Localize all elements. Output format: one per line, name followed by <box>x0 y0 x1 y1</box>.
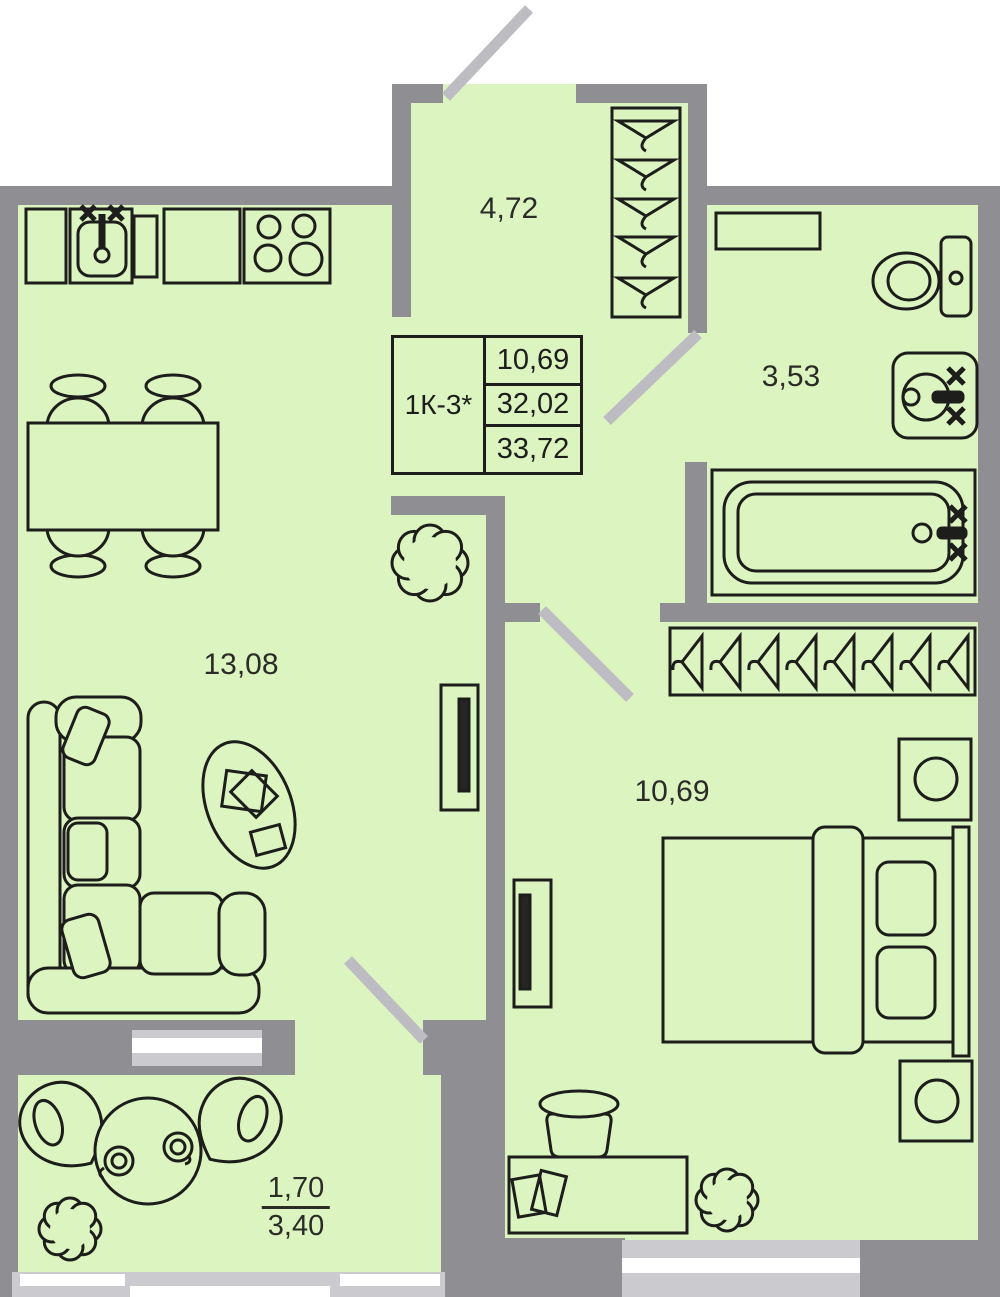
plant-bedroom <box>696 1169 758 1231</box>
toilet-icon <box>873 237 971 316</box>
balcony-coefficient-area: 1,70 <box>262 1172 330 1209</box>
desk-chair <box>540 1091 618 1157</box>
bathroom-door-leaf <box>607 334 698 421</box>
title-block: 1К-3* 10,69 32,02 33,72 <box>391 335 583 475</box>
area-living: 10,69 <box>486 338 580 383</box>
area-total: 32,02 <box>486 383 580 428</box>
area-full: 33,72 <box>486 427 580 472</box>
cabinet-panel-living <box>441 685 478 810</box>
cabinet-panel-bedroom <box>514 880 551 1007</box>
desk <box>509 1157 687 1233</box>
double-bed <box>663 827 969 1056</box>
room-label-balcony: 1,70 3,40 <box>262 1172 330 1243</box>
nightstand-bottom <box>900 1061 972 1141</box>
kitchen-counter <box>26 206 240 283</box>
washbasin-icon <box>893 353 977 438</box>
hall-wardrobe <box>612 108 680 317</box>
floor-plan: 1К-3* 10,69 32,02 33,72 4,72 3,53 13,08 … <box>0 0 1000 1297</box>
bathroom-shelf <box>716 213 820 249</box>
bedroom-door-leaf <box>542 610 630 698</box>
bathtub-icon <box>712 470 975 595</box>
dining-set <box>28 375 218 577</box>
balcony-table <box>95 1098 201 1204</box>
stove-icon <box>244 209 330 283</box>
room-label-hallway: 4,72 <box>480 192 538 226</box>
room-label-bathroom: 3,53 <box>762 360 820 394</box>
plant-balcony <box>39 1198 101 1260</box>
balcony-door-leaf <box>348 960 424 1040</box>
nightstand-top <box>899 739 971 820</box>
room-label-living: 13,08 <box>203 648 278 682</box>
coffee-table <box>185 728 312 882</box>
balcony-full-area: 3,40 <box>262 1210 330 1243</box>
bedroom-wardrobe <box>670 628 975 695</box>
entry-door-leaf <box>446 9 529 97</box>
room-label-bedroom: 10,69 <box>634 775 709 809</box>
apartment-code: 1К-3* <box>394 338 486 472</box>
plant-living <box>392 525 468 601</box>
